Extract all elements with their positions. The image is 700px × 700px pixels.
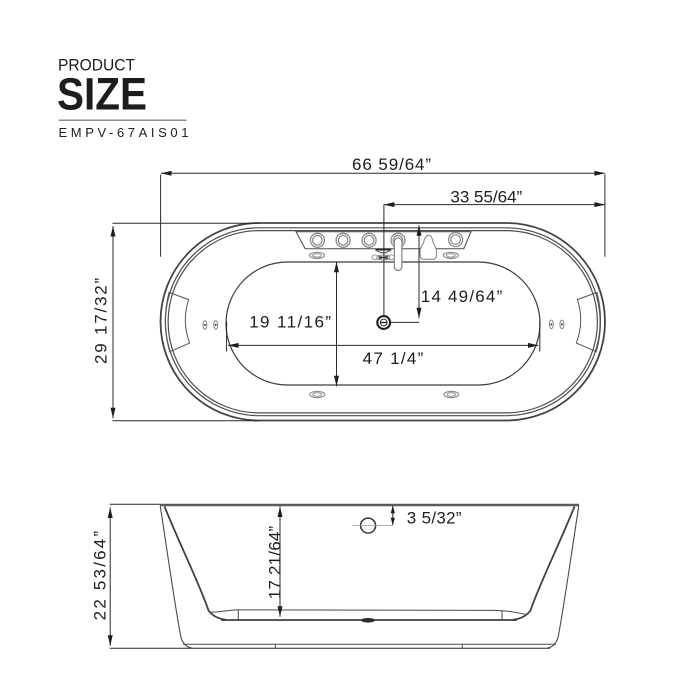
- svg-text:EMPV-67AIS01: EMPV-67AIS01: [59, 125, 193, 140]
- svg-text:66 59/64”: 66 59/64”: [352, 155, 432, 174]
- svg-text:33 55/64”: 33 55/64”: [450, 187, 522, 206]
- svg-text:SIZE: SIZE: [57, 69, 147, 120]
- svg-text:19 11/16”: 19 11/16”: [249, 313, 332, 332]
- svg-text:47 1/4”: 47 1/4”: [363, 349, 425, 368]
- svg-text:22 53/64”: 22 53/64”: [91, 529, 110, 621]
- svg-text:14 49/64”: 14 49/64”: [421, 287, 504, 306]
- svg-text:29 17/32”: 29 17/32”: [92, 276, 111, 364]
- svg-text:3 5/32”: 3 5/32”: [407, 508, 462, 527]
- svg-text:17 21/64”: 17 21/64”: [265, 525, 284, 599]
